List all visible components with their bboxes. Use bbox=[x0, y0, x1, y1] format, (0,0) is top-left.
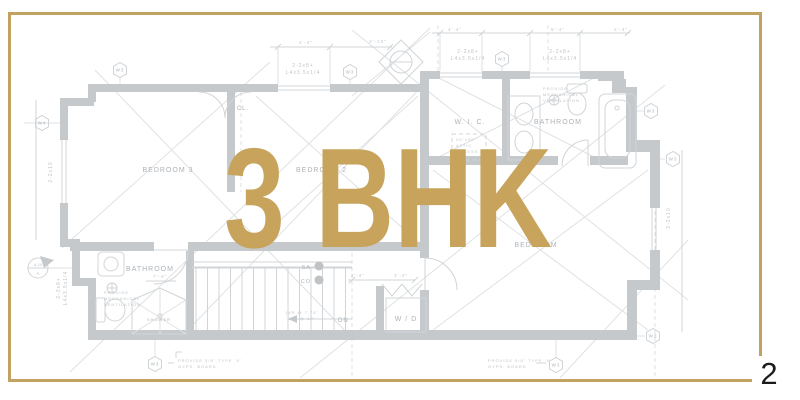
wall-marker-label: W3 bbox=[498, 57, 507, 62]
note-line: MECHANICAL bbox=[543, 92, 579, 97]
wall-marker-hexagon-icon: W3 bbox=[647, 329, 660, 344]
beam-label: L4x3.5x1/4 bbox=[451, 56, 485, 62]
wall-marker-label: W4 bbox=[38, 121, 47, 126]
wall-marker-label: W3 bbox=[649, 334, 658, 339]
overlay-title: 3 BHK bbox=[224, 128, 552, 270]
size-label: 3'-0" bbox=[91, 289, 96, 303]
wall-marker-hexagon-icon: W3 bbox=[344, 65, 357, 80]
washer-dryer bbox=[382, 284, 426, 332]
wall-marker-label: W3 bbox=[116, 68, 125, 73]
beam-label: L4x3.5x1/4 bbox=[286, 70, 320, 76]
note-line: PROVIDE 5/8" TYPE 'X' bbox=[178, 358, 242, 363]
stairs-dn-label: DN bbox=[338, 318, 349, 324]
room-label: SHOWER bbox=[147, 317, 171, 322]
stairs-note: 14R @ 7.75" bbox=[285, 310, 319, 315]
wall-marker-label: W3 bbox=[647, 109, 656, 114]
beam-label: 2-2x8+ bbox=[549, 49, 570, 55]
sink-icon bbox=[98, 252, 124, 276]
size-label: 4'-4" bbox=[448, 27, 462, 32]
size-label: 7'-4" bbox=[153, 274, 167, 279]
room-label: W / D bbox=[395, 316, 418, 323]
beam-label: L4x3.5x1/4 bbox=[63, 271, 69, 305]
size-label: 5'-4" bbox=[551, 27, 565, 32]
section-marker-icon: A-10 A bbox=[28, 256, 54, 278]
room-label: CL. bbox=[237, 106, 249, 112]
wall-marker-hexagon-icon: W3 bbox=[496, 52, 509, 67]
wall-marker-hexagon-icon: W3 bbox=[149, 357, 162, 372]
note-line: PROVIDE bbox=[543, 86, 568, 91]
note-line: GYPS. BOARD bbox=[488, 364, 527, 369]
wall-marker-hexagon-icon: W3 bbox=[114, 63, 127, 78]
page-number: 2 bbox=[752, 356, 786, 392]
wall-marker-hexagon-icon: W3 bbox=[645, 104, 658, 119]
wall-marker-hexagon-icon: W3 bbox=[550, 358, 563, 373]
section-marker-bottom: A bbox=[36, 271, 39, 276]
stairs-note: 13T @ 10" bbox=[288, 316, 316, 321]
wall-marker-hexagon-icon: W3 bbox=[667, 152, 680, 167]
wall-marker-label: W3 bbox=[552, 363, 561, 368]
legend-label: CO bbox=[301, 279, 311, 285]
wall-marker-label: W3 bbox=[346, 70, 355, 75]
note-line: PROVIDE bbox=[104, 290, 129, 295]
wall-marker-label: W3 bbox=[669, 157, 678, 162]
note-line: VENTILATION bbox=[543, 98, 580, 103]
section-marker-top: A-10 bbox=[34, 262, 43, 267]
slide: A-10 A BEDROOM 3BEDROOM 2W. I. C.BATHROO… bbox=[0, 0, 800, 400]
note-line: MECHANICAL bbox=[104, 296, 140, 301]
overlay-title-wrap: 3 BHK bbox=[178, 140, 598, 258]
note-line: PROVIDE 5/8" TYPE 'X' bbox=[488, 358, 552, 363]
beam-label: 2-2x8+ bbox=[56, 277, 62, 298]
size-label: 4'-4" bbox=[299, 40, 313, 45]
beam-label: 2-2x8+ bbox=[292, 63, 313, 69]
shower-stall bbox=[132, 288, 186, 334]
size-label: 2'-4" bbox=[614, 27, 628, 32]
size-label: 2-2x10 bbox=[48, 161, 54, 182]
beam-label: L4x3.5x1/4 bbox=[543, 56, 577, 62]
note-line: VENTILATION bbox=[104, 302, 141, 307]
wall-marker-label: W3 bbox=[151, 362, 160, 367]
note-line: GYPS. BOARD bbox=[178, 364, 217, 369]
room-label: BATHROOM bbox=[126, 266, 174, 273]
size-label: 2'-10" bbox=[369, 39, 386, 44]
size-label: 2-2x10 bbox=[666, 207, 672, 228]
beam-label: 2-2x8+ bbox=[457, 49, 478, 55]
